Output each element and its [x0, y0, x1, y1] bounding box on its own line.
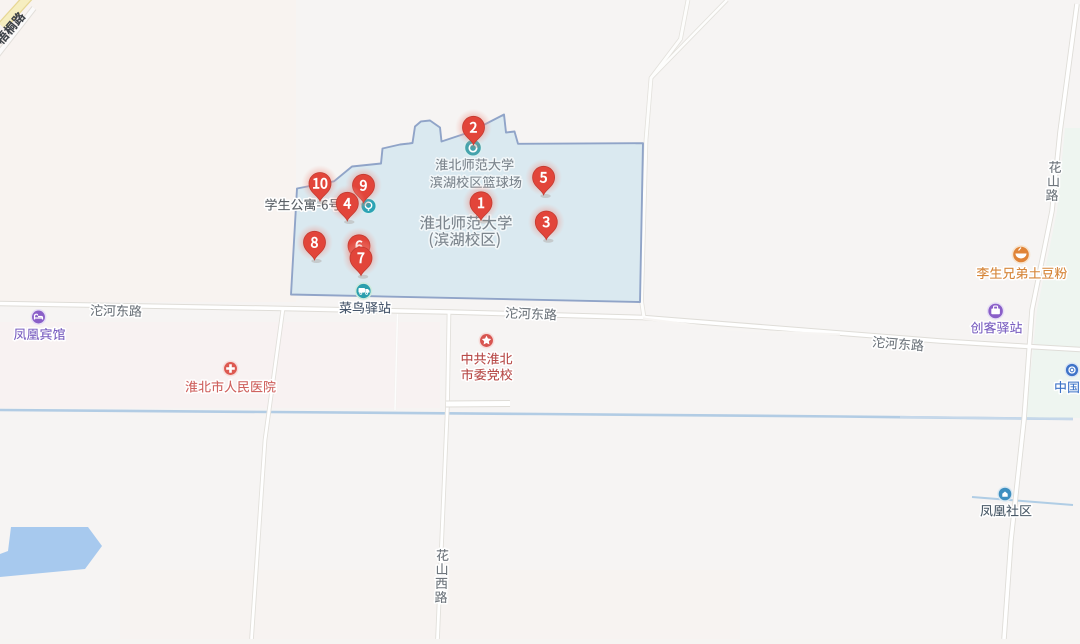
svg-text:3: 3: [542, 212, 550, 232]
svg-text:路: 路: [1045, 185, 1058, 204]
svg-text:菜鸟驿站: 菜鸟驿站: [339, 298, 391, 317]
svg-text:7: 7: [357, 248, 365, 268]
svg-text:沱河东路: 沱河东路: [90, 300, 142, 320]
svg-text:(滨湖校区): (滨湖校区): [428, 228, 501, 250]
svg-text:李生兄弟土豆粉: 李生兄弟土豆粉: [976, 263, 1067, 282]
svg-text:1: 1: [477, 193, 485, 213]
svg-text:市委党校: 市委党校: [461, 365, 513, 384]
svg-text:5: 5: [540, 167, 548, 187]
svg-text:2: 2: [470, 117, 478, 137]
svg-text:路: 路: [434, 587, 447, 606]
svg-text:淮北市人民医院: 淮北市人民医院: [185, 377, 276, 396]
svg-text:淮北师范大学: 淮北师范大学: [435, 155, 514, 174]
svg-text:10: 10: [312, 174, 328, 194]
svg-text:4: 4: [343, 193, 351, 213]
svg-text:凤凰社区: 凤凰社区: [980, 501, 1032, 520]
svg-text:中国工: 中国工: [1054, 377, 1080, 396]
svg-text:沱河东路: 沱河东路: [505, 302, 558, 323]
svg-text:创客驿站: 创客驿站: [970, 318, 1022, 337]
svg-text:8: 8: [311, 232, 319, 252]
svg-text:凤凰宾馆: 凤凰宾馆: [13, 324, 65, 343]
svg-text:沱河东路: 沱河东路: [871, 331, 924, 354]
